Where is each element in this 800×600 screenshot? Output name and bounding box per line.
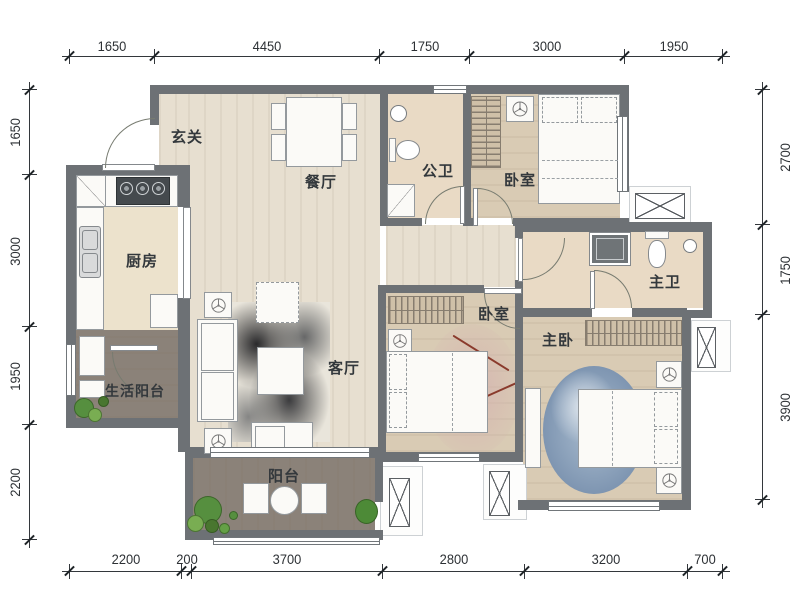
ceiling-fan-icon [388, 329, 412, 352]
ac-unit-box [389, 478, 410, 527]
pillow [581, 97, 617, 123]
plant [88, 408, 102, 422]
dim-label-bottom: 3700 [259, 550, 314, 568]
dim-label-left: 1950 [6, 348, 24, 403]
wall-bedroom-top-bottom-b [513, 218, 629, 226]
cabinet [256, 282, 299, 323]
stove-burner [152, 182, 165, 195]
blanket-line [542, 160, 618, 161]
dim-label-top: 1950 [646, 37, 701, 55]
dim-label-right: 2700 [776, 129, 794, 184]
blanket-line [542, 178, 618, 179]
dimension-line-top [62, 56, 730, 57]
bath-sink [390, 105, 407, 122]
window-top-wall [433, 85, 467, 94]
floor-plan: 玄关 餐厅 公卫 卧室 厨房 客厅 卧室 主卫 主卧 生活阳台 阳台 1650 … [0, 0, 800, 600]
stove-burner [136, 182, 149, 195]
tv-cabinet [525, 388, 541, 468]
plant [205, 519, 219, 533]
room-label-living: 客厅 [316, 359, 372, 379]
nightstand-fan-icon [656, 361, 682, 388]
service-door-leaf [110, 345, 158, 351]
room-label-bedroom-middle: 卧室 [466, 305, 522, 325]
vanity-basin [596, 238, 624, 260]
pillow [654, 429, 678, 464]
dim-label-bottom: 200 [159, 550, 214, 568]
dining-chair [271, 103, 286, 130]
fridge [150, 294, 178, 328]
balcony-table [270, 486, 299, 515]
dim-label-left: 3000 [6, 223, 24, 278]
wall-living-divider [178, 330, 190, 452]
window-balcony-sill [213, 537, 380, 545]
room-label-kitchen: 厨房 [114, 252, 170, 272]
wall-kitchen-divider-b [178, 298, 190, 332]
plant [355, 499, 378, 524]
kitchen-sink-bowl [82, 253, 98, 273]
wall-bedroom-mid-left [378, 285, 386, 462]
ac-unit-box [635, 193, 685, 219]
sliding-door-living-balcony [210, 447, 370, 458]
dim-label-left: 2200 [6, 454, 24, 509]
dim-label-right: 3900 [776, 379, 794, 434]
room-label-dining: 餐厅 [292, 173, 350, 193]
wall-master-bath-bottom-b [632, 308, 687, 317]
wardrobe [471, 96, 501, 168]
wardrobe [585, 320, 682, 346]
wardrobe [388, 296, 464, 324]
wall-master-right [682, 310, 691, 510]
dim-label-bottom: 2800 [426, 550, 481, 568]
blanket-line [612, 391, 613, 466]
room-label-balcony: 阳台 [256, 467, 312, 487]
dining-table [286, 97, 342, 167]
balcony-chair [243, 483, 269, 514]
toilet-tank [645, 231, 669, 239]
pillow [389, 392, 407, 428]
pillow [389, 354, 407, 390]
pillow [654, 392, 678, 427]
kitchen-corner-cabinet [76, 175, 106, 207]
dim-label-right: 1750 [776, 242, 794, 297]
window-bedroom-top-right [617, 116, 628, 192]
dim-label-bottom: 2200 [98, 550, 153, 568]
room-label-service-balcony: 生活阳台 [100, 381, 170, 401]
dim-label-bottom: 700 [677, 550, 732, 568]
window-service-balcony [66, 344, 76, 396]
room-label-public-bath: 公卫 [410, 162, 466, 182]
dim-label-left: 1650 [6, 104, 24, 159]
blanket-line [452, 353, 453, 431]
coffee-table [257, 347, 304, 395]
wall-bedroom-mid-top [378, 285, 484, 293]
dining-chair [342, 103, 357, 130]
wall-top [150, 85, 629, 94]
room-label-master-bedroom: 主卧 [530, 331, 586, 351]
room-label-foyer: 玄关 [158, 128, 216, 148]
dim-label-top: 3000 [519, 37, 574, 55]
washing-machine [79, 336, 105, 376]
dimension-line-left [29, 82, 30, 548]
side-table-fan-icon [204, 292, 232, 318]
ac-unit-box [697, 327, 716, 368]
dim-label-top: 1650 [84, 37, 139, 55]
window-bedroom-middle [418, 453, 480, 462]
plant [229, 511, 238, 520]
toilet-bowl [648, 240, 666, 268]
kitchen-sliding-door [183, 207, 191, 299]
pillow [542, 97, 578, 123]
dining-chair [271, 134, 286, 161]
room-label-master-bath: 主卫 [637, 273, 693, 293]
ac-unit-box [489, 471, 510, 516]
stove-burner [120, 182, 133, 195]
dimension-line-right [762, 82, 763, 508]
plant [219, 523, 230, 534]
wall-bath-bottom [380, 218, 422, 226]
wall-kitchen-left [66, 165, 76, 330]
wall-master-bath-bottom-a [523, 308, 592, 317]
room-label-bedroom-top: 卧室 [492, 171, 548, 191]
dim-label-top: 4450 [239, 37, 294, 55]
wall-service-bottom [66, 418, 188, 428]
kitchen-sink-bowl [82, 230, 98, 250]
window-master-bedroom [548, 501, 660, 511]
dim-label-bottom: 3200 [578, 550, 633, 568]
wall-service-left-a [66, 330, 76, 344]
ceiling-fan-icon [506, 96, 534, 122]
plant [187, 515, 204, 532]
wall-master-bath-right [703, 222, 712, 317]
wall-accessory [683, 239, 697, 253]
dimension-line-bottom [62, 571, 730, 572]
toilet-tank [389, 138, 396, 162]
nightstand-fan-icon [656, 467, 682, 494]
balcony-chair [301, 483, 327, 514]
floor-hallway [386, 225, 516, 287]
shower-stall [387, 184, 415, 217]
sofa-cushion [201, 323, 234, 371]
entry-door-arc [105, 118, 155, 168]
dim-label-top: 1750 [397, 37, 452, 55]
toilet-bowl [396, 140, 420, 160]
sofa-cushion [201, 372, 234, 420]
wall-kitchen-divider-a [178, 165, 190, 207]
dining-chair [342, 134, 357, 161]
